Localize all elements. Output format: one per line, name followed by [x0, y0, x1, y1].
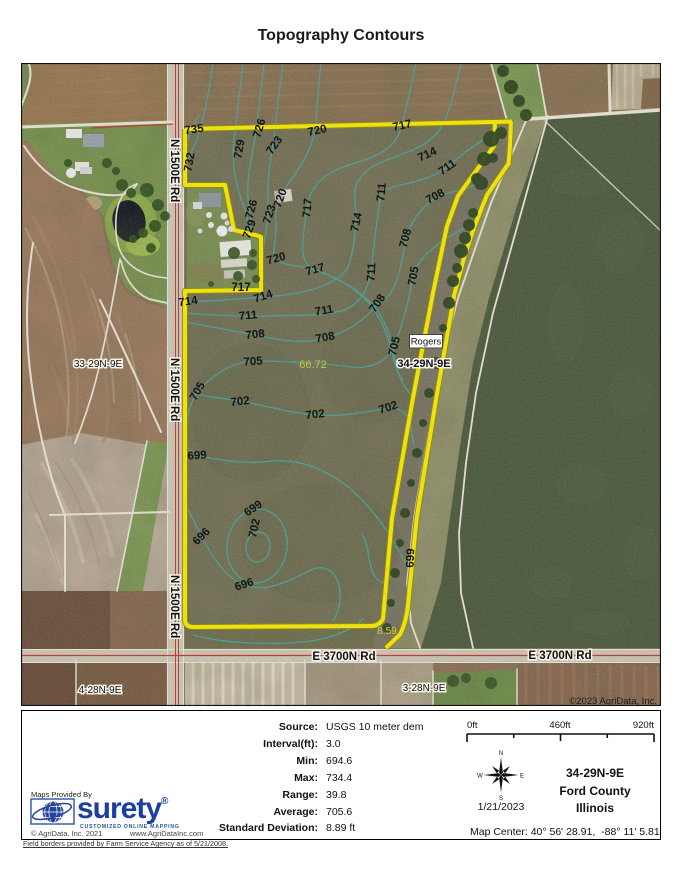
svg-text:E: E	[520, 774, 524, 780]
svg-text:711: 711	[238, 309, 258, 323]
svg-text:©2023 AgriData, Inc.: ©2023 AgriData, Inc.	[569, 696, 657, 706]
svg-text:699: 699	[405, 548, 418, 568]
svg-text:3-28N-9E: 3-28N-9E	[403, 683, 446, 694]
svg-text:E 3700N Rd: E 3700N Rd	[312, 651, 375, 663]
svg-text:N: N	[499, 751, 503, 757]
svg-text:702: 702	[305, 408, 325, 422]
svg-text:E 3700N Rd: E 3700N Rd	[528, 650, 591, 662]
svg-text:708: 708	[245, 328, 266, 342]
svg-text:460ft: 460ft	[549, 720, 570, 731]
svg-text:4-28N-9E: 4-28N-9E	[79, 685, 122, 696]
svg-text:N 1500E Rd: N 1500E Rd	[168, 358, 180, 421]
svg-text:711: 711	[366, 262, 379, 282]
svg-text:34-29N-9E: 34-29N-9E	[397, 358, 450, 370]
svg-text:W: W	[477, 774, 483, 780]
svg-text:N 1500E Rd: N 1500E Rd	[168, 575, 180, 638]
svg-text:711: 711	[375, 182, 389, 202]
svg-text:920ft: 920ft	[633, 720, 654, 731]
svg-text:8.59: 8.59	[377, 626, 397, 637]
svg-text:702: 702	[230, 395, 250, 409]
svg-text:Rogers: Rogers	[411, 337, 442, 348]
svg-text:717: 717	[301, 198, 315, 218]
svg-text:0ft: 0ft	[467, 720, 478, 731]
svg-text:699: 699	[187, 449, 207, 462]
svg-text:33-29N-9E: 33-29N-9E	[74, 359, 123, 370]
svg-text:66.72: 66.72	[299, 359, 327, 371]
svg-text:717: 717	[231, 282, 250, 294]
svg-text:705: 705	[243, 355, 264, 368]
svg-text:N 1500E Rd: N 1500E Rd	[168, 139, 180, 202]
